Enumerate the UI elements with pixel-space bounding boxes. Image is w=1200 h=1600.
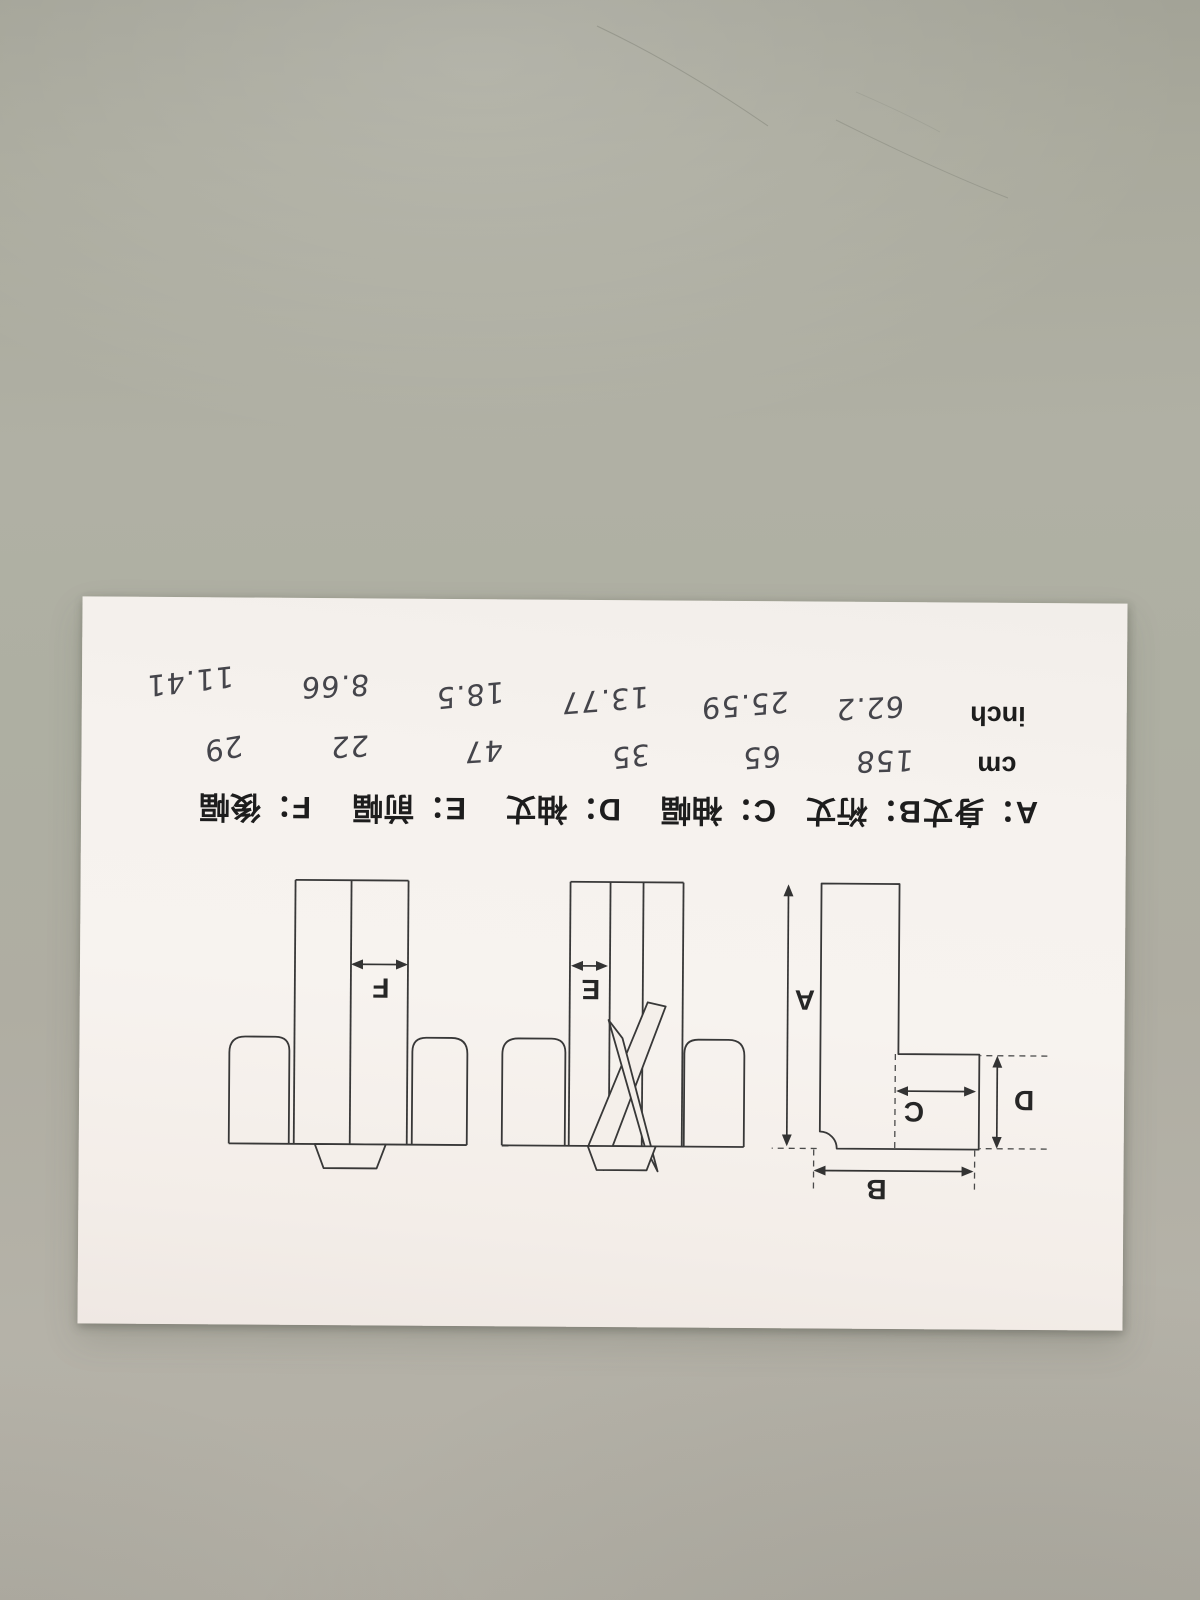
diagram-letter-f: F: [372, 972, 389, 1003]
inch-value-b: 25.59: [701, 684, 790, 725]
legend-item-a: A：身丈: [922, 792, 1038, 838]
diagram-letter-e: E: [581, 974, 600, 1005]
legend-colon: ：: [261, 790, 292, 825]
legend-item-d: D：袖丈: [506, 789, 622, 835]
front-right-sleeve: [502, 1038, 566, 1145]
legend-item-c: C：袖幅: [661, 790, 777, 836]
legend-letter: D: [599, 792, 622, 827]
body-length-diagram: A B C D: [771, 883, 1048, 1206]
back-right-sleeve: [229, 1036, 290, 1143]
legend-term: 前幅: [352, 790, 414, 825]
cm-value-f: 29: [203, 728, 244, 769]
legend-letter: A: [1016, 795, 1039, 830]
diagram-letter-c: C: [904, 1096, 924, 1127]
back-width-diagram: F: [229, 879, 469, 1169]
legend-colon: ：: [568, 792, 599, 827]
measurement-legend: A：身丈 B：裄丈 C：袖幅 D：袖丈 E：前幅 F：後幅: [81, 787, 1126, 838]
cm-value-b: 65: [742, 738, 782, 775]
legend-term: 後幅: [199, 789, 261, 824]
inch-value-c: 13.77: [561, 679, 650, 720]
arrow-C-sleeve-width: [898, 1091, 974, 1092]
legend-term: 裄丈: [806, 793, 868, 828]
legend-term: 袖丈: [506, 791, 568, 826]
legend-term: 身丈: [923, 794, 985, 829]
inch-value-e: 8.66: [300, 668, 371, 705]
size-chart-sheet: A B C D E: [77, 596, 1127, 1330]
arrow-B-sleeve-reach: [816, 1170, 972, 1171]
cm-value-a: 158: [854, 743, 915, 779]
legend-term: 袖幅: [661, 792, 723, 827]
legend-letter: E: [445, 791, 466, 826]
diagram-letter-a: A: [795, 984, 815, 1015]
cm-value-d: 47: [463, 733, 503, 770]
legend-item-b: B：裄丈: [806, 791, 922, 837]
legend-letter: C: [754, 793, 777, 828]
inch-value-a: 62.2: [835, 689, 906, 726]
cm-value-e: 22: [329, 728, 370, 764]
legend-item-f: F：後幅: [199, 787, 311, 833]
front-width-diagram: E: [502, 881, 746, 1172]
legend-item-e: E：前幅: [352, 788, 466, 834]
diagram-letter-d: D: [1014, 1085, 1034, 1116]
legend-colon: ：: [985, 795, 1016, 830]
legend-colon: ：: [414, 791, 445, 826]
legend-colon: ：: [723, 793, 754, 828]
arrow-D-sleeve-depth: [997, 1058, 998, 1147]
unit-label-cm: cm: [977, 750, 1016, 781]
cm-value-c: 35: [611, 737, 650, 776]
diagram-letter-b: B: [866, 1174, 886, 1205]
front-collar-tab: [588, 1146, 656, 1170]
desk-surface: A B C D E: [0, 0, 1200, 1600]
inch-value-d: 18.5: [436, 675, 504, 716]
back-left-sleeve: [412, 1038, 468, 1145]
kimono-body-outline: [820, 884, 981, 1150]
legend-letter: F: [292, 790, 311, 825]
arrow-A-body-length: [787, 886, 789, 1144]
back-collar-tab: [315, 1144, 386, 1168]
legend-colon: ：: [868, 794, 899, 829]
legend-letter: B: [899, 794, 922, 829]
unit-label-inch: inch: [970, 700, 1026, 731]
front-left-sleeve: [684, 1040, 745, 1147]
